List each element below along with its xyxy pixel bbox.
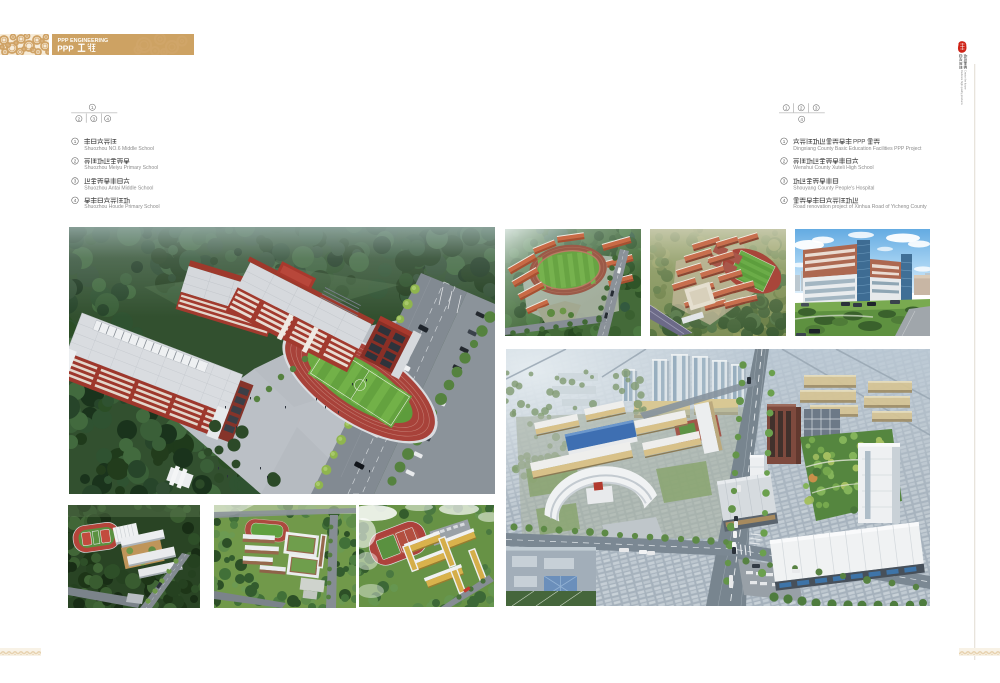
- svg-text:Shuozhou Meiyu Primary School: Shuozhou Meiyu Primary School: [84, 165, 158, 171]
- svg-text:4: 4: [106, 116, 109, 121]
- svg-text:3: 3: [74, 179, 77, 184]
- svg-text:1: 1: [91, 105, 94, 110]
- svg-text:3: 3: [93, 116, 96, 121]
- svg-text:2: 2: [78, 116, 81, 121]
- svg-text:2: 2: [74, 159, 77, 164]
- svg-text:2: 2: [800, 105, 803, 110]
- svg-text:Shouyang County People's Hospi: Shouyang County People's Hospital: [793, 185, 874, 191]
- svg-text:Shuozhou Antai Middle School: Shuozhou Antai Middle School: [84, 185, 153, 191]
- svg-text:4: 4: [74, 198, 77, 203]
- svg-text:4: 4: [800, 117, 803, 122]
- svg-text:PPP: PPP: [853, 139, 865, 146]
- svg-text:3: 3: [815, 105, 818, 110]
- svg-text:1: 1: [785, 105, 788, 110]
- svg-text:2: 2: [783, 159, 786, 164]
- svg-text:Shuozhou Houde Primary School: Shuozhou Houde Primary School: [84, 204, 159, 210]
- svg-text:3: 3: [783, 179, 786, 184]
- svg-text:Shuozhou NO.6 Middle School: Shuozhou NO.6 Middle School: [84, 146, 154, 152]
- svg-text:1: 1: [74, 139, 77, 144]
- svg-text:Dingxiang County Basic Educati: Dingxiang County Basic Education Facilit…: [793, 146, 922, 152]
- svg-text:Road renovation project of Xin: Road renovation project of Xinhua Road o…: [793, 204, 927, 210]
- svg-text:Wenshui County Xuteli High Sch: Wenshui County Xuteli High School: [793, 165, 873, 171]
- svg-text:1: 1: [783, 139, 786, 144]
- svg-text:4: 4: [783, 198, 786, 203]
